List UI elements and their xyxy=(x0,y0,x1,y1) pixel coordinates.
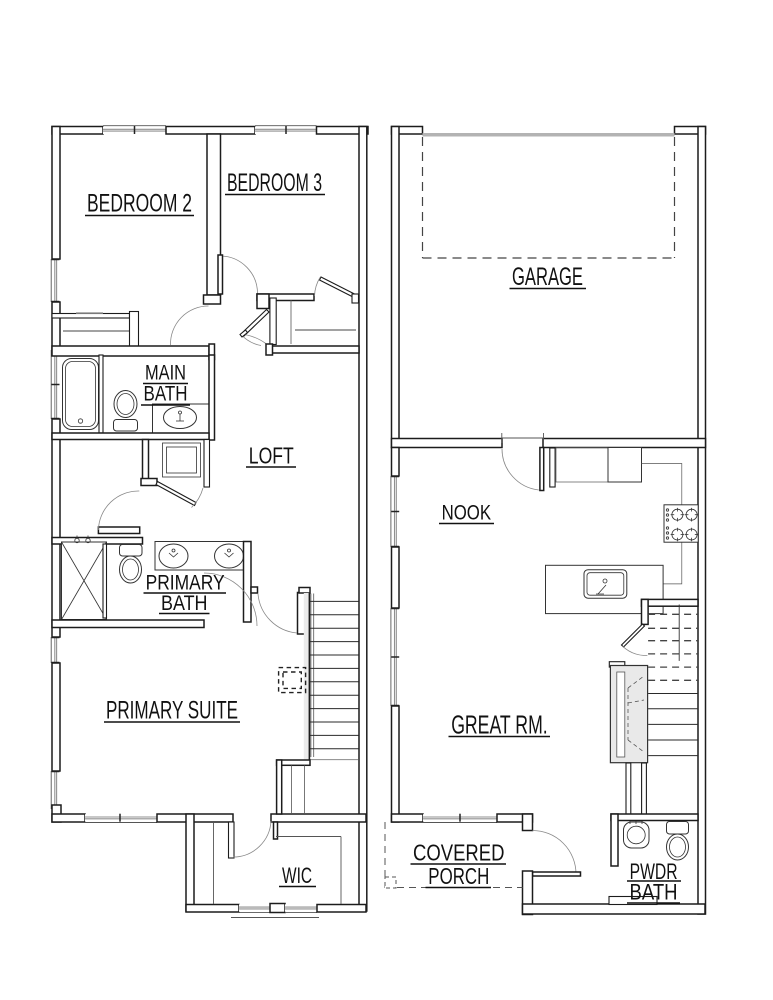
svg-text:MAIN: MAIN xyxy=(145,362,186,385)
svg-text:COVERED: COVERED xyxy=(413,840,505,866)
svg-text:BEDROOM 2: BEDROOM 2 xyxy=(87,190,192,218)
svg-text:GARAGE: GARAGE xyxy=(512,263,583,291)
svg-text:BATH: BATH xyxy=(144,383,188,406)
svg-text:GREAT RM.: GREAT RM. xyxy=(451,710,548,740)
svg-text:PRIMARY SUITE: PRIMARY SUITE xyxy=(106,697,238,725)
svg-text:BEDROOM 3: BEDROOM 3 xyxy=(227,169,322,197)
svg-text:WIC: WIC xyxy=(282,863,312,888)
svg-text:BATH: BATH xyxy=(161,592,208,615)
svg-text:NOOK: NOOK xyxy=(442,502,492,525)
svg-text:PORCH: PORCH xyxy=(428,863,489,889)
svg-text:LOFT: LOFT xyxy=(249,443,294,469)
svg-text:BATH: BATH xyxy=(630,880,678,905)
